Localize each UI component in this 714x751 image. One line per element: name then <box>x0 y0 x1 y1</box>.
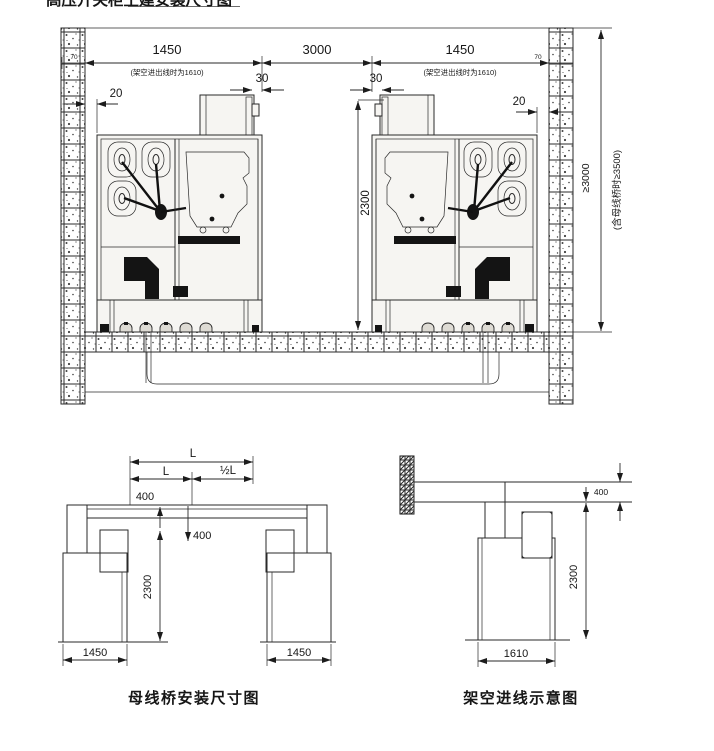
dim-aisle-label: 3000 <box>303 42 332 57</box>
dim-wall-left-label: 70 <box>70 54 78 61</box>
wall-anchor <box>400 456 414 514</box>
svg-text:2300: 2300 <box>568 565 580 589</box>
drawing-page: 高压开关柜土建安装尺寸图 <box>0 0 714 751</box>
dim-depth-right-label: 1450 <box>446 42 475 57</box>
room-section: 70 70 1450 (架空进出线时为1610) 3000 1450 (架空进出… <box>61 28 623 404</box>
svg-text:400: 400 <box>594 487 608 497</box>
floor-slab <box>85 332 549 352</box>
dim-overhead-width: 1610 <box>478 642 555 667</box>
svg-text:1450: 1450 <box>83 647 107 659</box>
dim-gap30-right: 30 <box>350 73 404 90</box>
dim-drop: 400 <box>188 506 211 542</box>
clipped-title: 高压开关柜土建安装尺寸图 <box>46 0 240 9</box>
dim-depth-left-note: (架空进出线时为1610) <box>130 68 203 77</box>
svg-text:400: 400 <box>193 530 211 542</box>
dim-busbar-height: 2300 <box>142 531 160 641</box>
dim-beam-height: 400 <box>586 463 620 521</box>
left-wall <box>61 28 85 404</box>
span-half-label: ½L <box>220 465 237 477</box>
svg-text:1610: 1610 <box>504 648 528 660</box>
dim-chain-top: 70 70 1450 (架空进出线时为1610) 3000 1450 (架空进出… <box>62 42 573 92</box>
dim-width-left: 1450 <box>63 644 127 666</box>
room-height-label: ≥3000 <box>580 163 592 192</box>
left-cabinet-section <box>97 95 262 332</box>
clipped-title-text: 高压开关柜土建安装尺寸图 <box>46 0 232 9</box>
overhead-caption: 架空进线示意图 <box>462 689 579 707</box>
busbar-right-cabinet <box>266 530 331 642</box>
svg-text:20: 20 <box>513 96 526 108</box>
svg-text:400: 400 <box>136 491 154 503</box>
svg-text:20: 20 <box>110 88 123 100</box>
svg-text:30: 30 <box>370 73 383 85</box>
dim-overhead-height: 2300 <box>568 503 586 639</box>
svg-text:30: 30 <box>256 73 269 85</box>
overhead-cabinet <box>478 512 555 640</box>
busbar-caption: 母线桥安装尺寸图 <box>128 689 260 707</box>
dim-room-height: ≥3000 (含母线桥时≥3500) <box>580 30 623 331</box>
busbar-left-cabinet <box>63 530 128 642</box>
dim-rise: 400 <box>136 491 160 528</box>
dim-wall-right-label: 70 <box>534 54 542 61</box>
span-left-label: L <box>163 466 170 478</box>
right-cabinet-section <box>372 95 537 332</box>
technical-drawing: 高压开关柜土建安装尺寸图 <box>0 0 714 751</box>
busbar-bridge-diagram: L L ½L 400 400 2300 1450 <box>58 448 336 707</box>
right-wall <box>549 28 573 404</box>
overhead-line-diagram: 400 2300 1610 架空进线示意图 <box>400 456 632 707</box>
dim-depth-left-label: 1450 <box>153 42 182 57</box>
svg-text:2300: 2300 <box>360 190 372 216</box>
room-height-note: (含母线桥时≥3500) <box>611 150 623 230</box>
svg-text:1450: 1450 <box>287 647 311 659</box>
span-total-label: L <box>190 448 197 460</box>
svg-text:2300: 2300 <box>142 575 154 599</box>
dim-width-right: 1450 <box>267 644 331 666</box>
dim-gap30-left: 30 <box>230 73 284 90</box>
dim-depth-right-note: (架空进出线时为1610) <box>423 68 496 77</box>
